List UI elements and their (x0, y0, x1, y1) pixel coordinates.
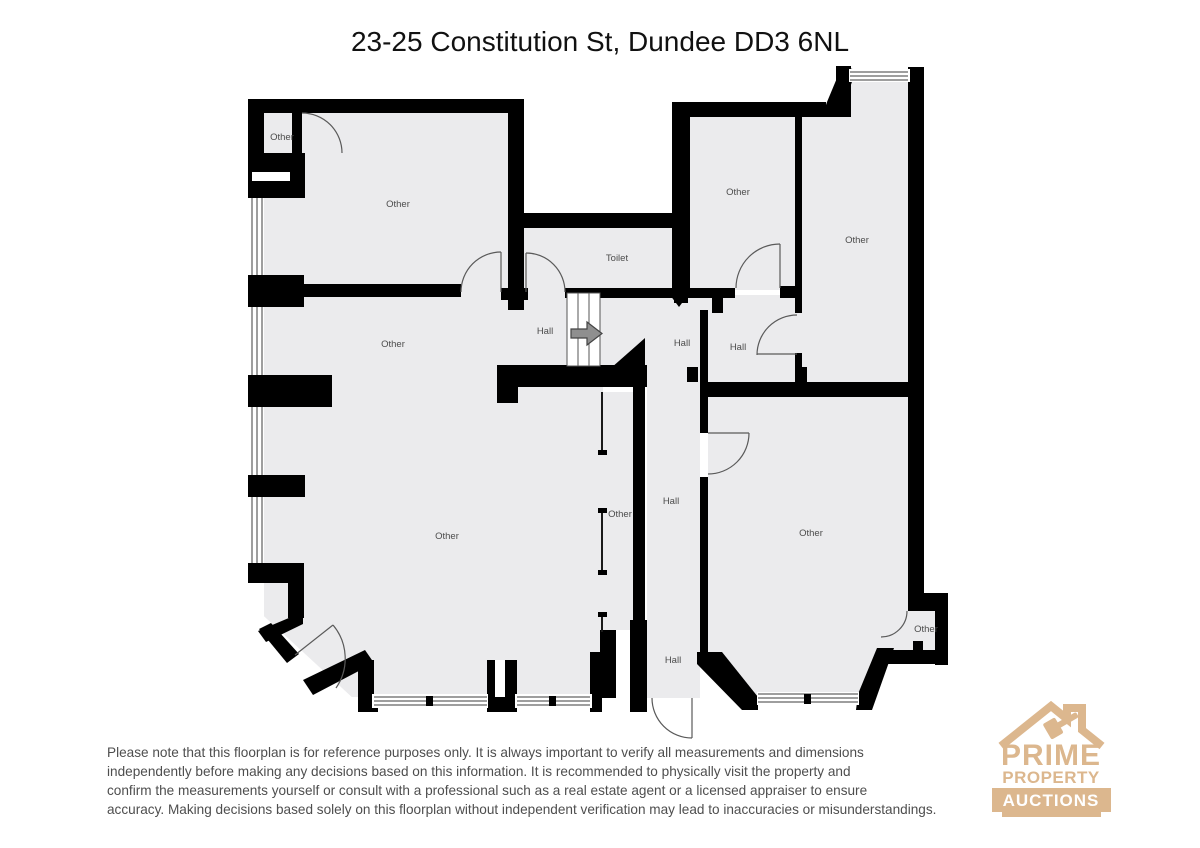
disclaimer-text: Please note that this floorplan is for r… (107, 743, 957, 819)
logo-banner-base (1002, 812, 1101, 817)
room-label-hall-bottom: Hall (665, 655, 681, 666)
room-label-other-bigleft: Other (435, 531, 459, 542)
disclaimer-line: accuracy. Making decisions based solely … (107, 800, 957, 819)
room-label-hall-corridor: Hall (663, 496, 679, 507)
room-label-other-topright: Other (726, 187, 750, 198)
room-label-other-upper: Other (381, 339, 405, 350)
room-label-other-bigright: Other (799, 528, 823, 539)
floorplan-page: 23-25 Constitution St, Dundee DD3 6NL (0, 0, 1200, 848)
room-label-other-narrow: Other (608, 509, 632, 520)
disclaimer-line: confirm the measurements yourself or con… (107, 781, 957, 800)
room-label-other-topleft: Other (386, 199, 410, 210)
prime-property-auctions-logo: PRIME PROPERTY AUCTIONS (988, 696, 1116, 818)
logo-word-auctions: AUCTIONS (1003, 791, 1100, 810)
room-label-hall-pocket: Hall (730, 342, 746, 353)
disclaimer-line: independently before making any decision… (107, 762, 957, 781)
room-label-hall-mid: Hall (674, 338, 690, 349)
staircase (567, 293, 602, 366)
logo-word-property: PROPERTY (1002, 768, 1100, 787)
room-label-toilet: Toilet (606, 253, 629, 264)
room-label-other-alcove: Other (914, 624, 938, 635)
disclaimer-line: Please note that this floorplan is for r… (107, 743, 957, 762)
room-label-other-northeast: Other (845, 235, 869, 246)
room-label-hall-main: Hall (537, 326, 553, 337)
room-label-other-closet: Other (270, 132, 294, 143)
